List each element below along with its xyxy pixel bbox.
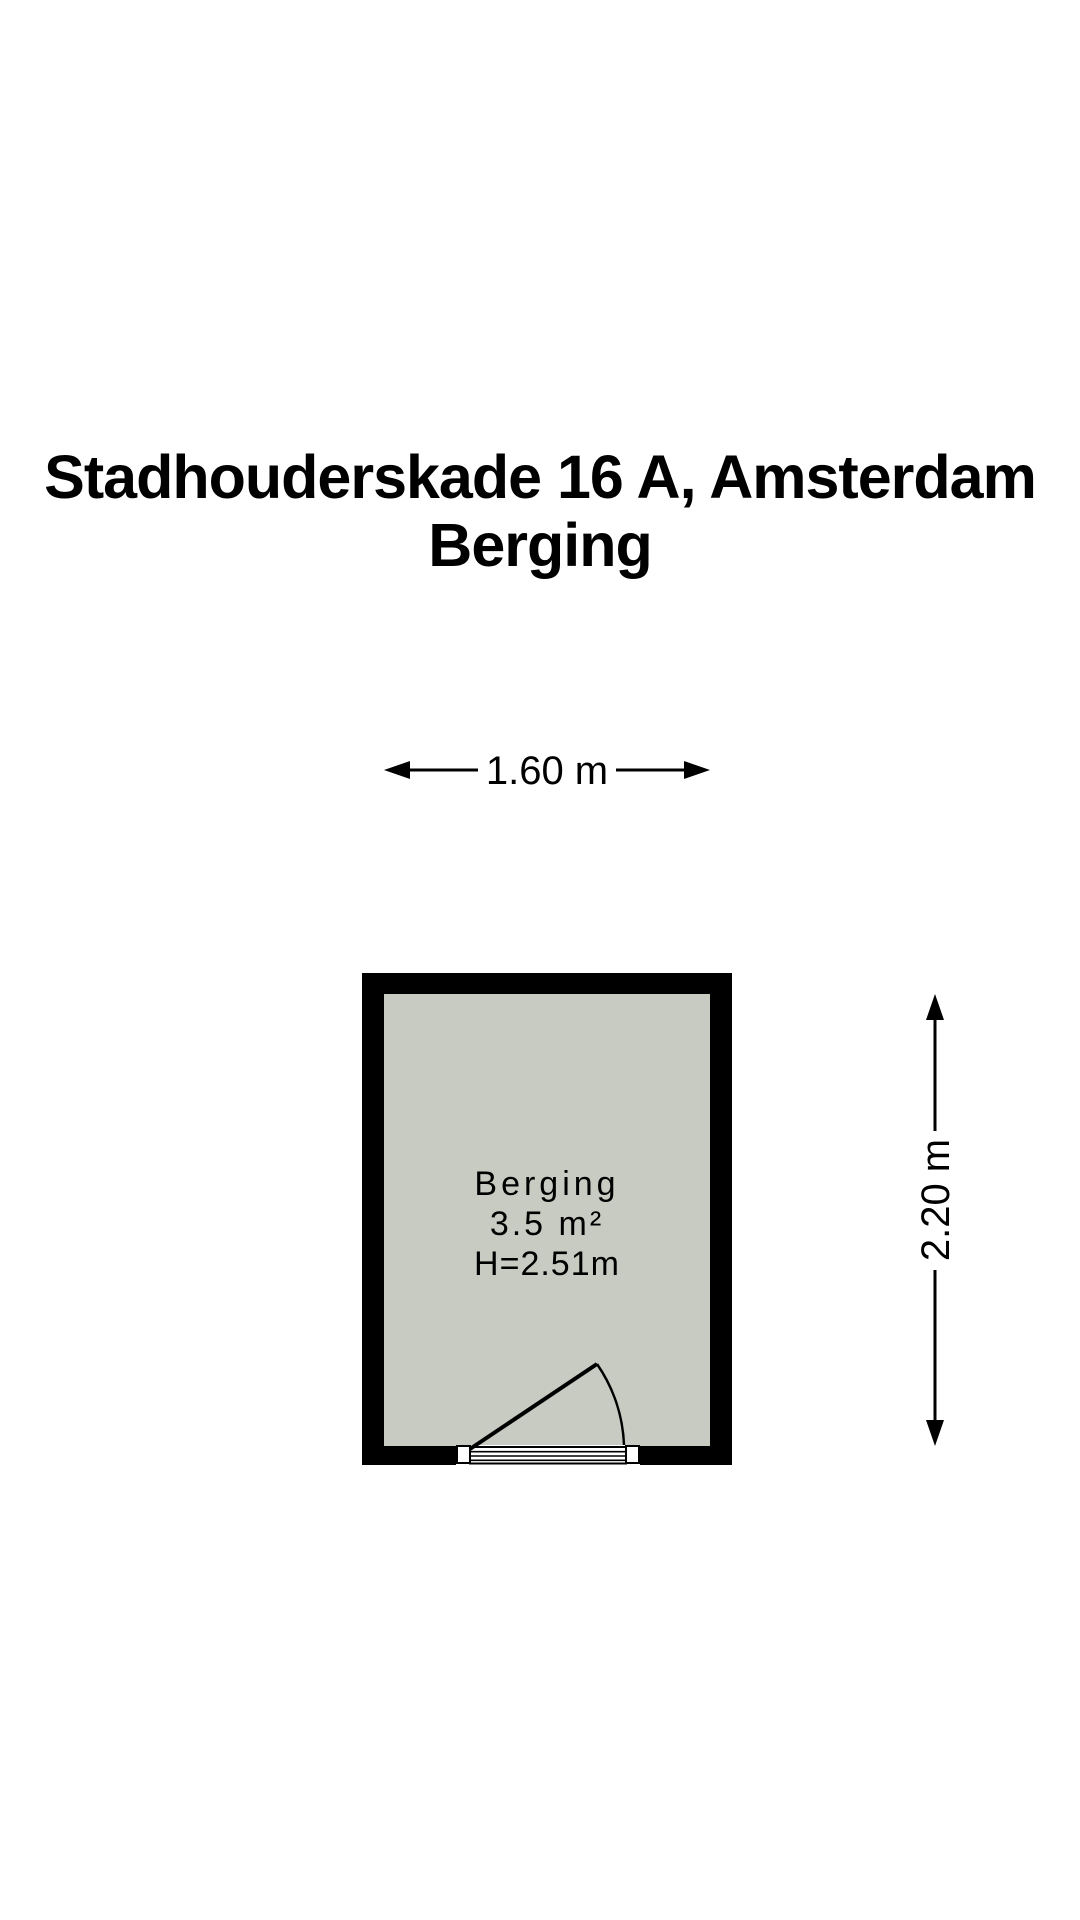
room-berging: Berging 3.5 m² H=2.51m [362,973,732,1465]
door-jamb-right [626,1446,639,1463]
arrowhead-right-icon [684,761,710,779]
door-sill [470,1447,626,1464]
width-dimension-label: 1.60 m [486,749,608,793]
room-area-label: 3.5 m² [490,1205,604,1243]
height-dimension: 2.20 m [914,994,958,1446]
arrowhead-left-icon [384,761,410,779]
floorplan-drawing: 1.60 m Berging 3.5 m² [0,0,1080,1920]
width-dimension: 1.60 m [384,749,710,793]
height-dimension-label: 2.20 m [914,1139,958,1261]
arrowhead-down-icon [926,1420,944,1446]
room-height-label: H=2.51m [474,1245,620,1283]
door-jamb-left [457,1446,470,1463]
floorplan-page: Stadhouderskade 16 A, Amsterdam Berging … [0,0,1080,1920]
arrowhead-up-icon [926,994,944,1020]
room-name-label: Berging [474,1165,619,1203]
